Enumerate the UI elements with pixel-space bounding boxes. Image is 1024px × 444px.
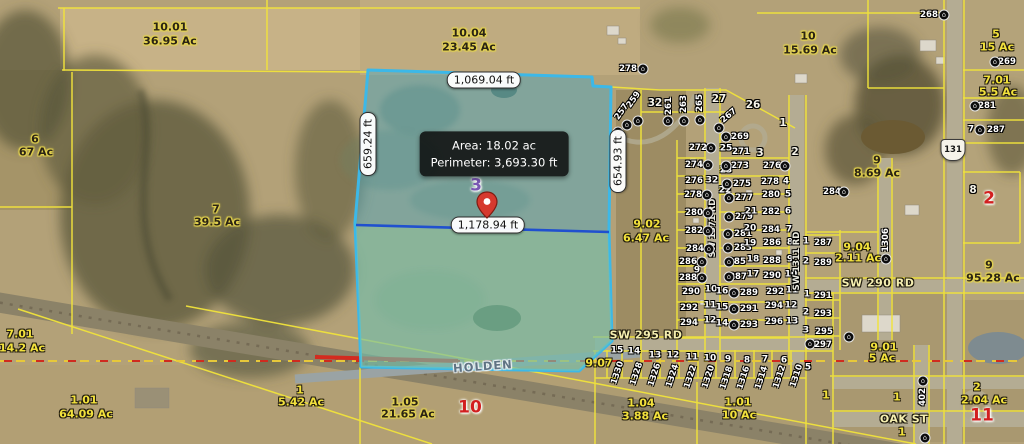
house-icon: ⌂ [704,244,715,255]
measurement-label: 654.93 ft [610,129,627,193]
measurement-label: 1,178.94 ft [451,217,525,234]
tooltip-area-text: Area: 18.02 ac [431,137,558,154]
house-icon: ⌂ [702,190,713,201]
house-icon: ⌂ [844,332,855,343]
house-icon: ⌂ [780,161,791,172]
house-icon: ⌂ [697,273,708,284]
house-icon: ⌂ [724,212,735,223]
map-viewport[interactable]: 10.0136.95 Ac10.0423.45 Ac1015.69 Ac667 … [0,0,1024,444]
house-icon: ⌂ [695,115,706,126]
house-icon: ⌂ [975,125,986,136]
house-icon: ⌂ [722,179,733,190]
house-icon: ⌂ [990,57,1001,68]
measurement-label: 1,069.04 ft [447,72,521,89]
house-icon: ⌂ [721,161,732,172]
house-icon: ⌂ [805,339,816,350]
house-icon: ⌂ [729,288,740,299]
house-icon: ⌂ [729,304,740,315]
house-icon: ⌂ [697,257,708,268]
house-icon: ⌂ [721,132,732,143]
house-icon: ⌂ [729,320,740,331]
house-icon: ⌂ [723,229,734,240]
house-icon: ⌂ [706,143,717,154]
house-icon: ⌂ [881,254,892,265]
house-icon: ⌂ [679,116,690,127]
house-icon: ⌂ [970,101,981,112]
house-icon: ⌂ [723,243,734,254]
house-icon: ⌂ [839,187,850,198]
measurement-label: 659.24 ft [360,112,377,176]
house-icon: ⌂ [703,226,714,237]
house-icon: ⌂ [703,208,714,219]
location-pin-icon[interactable] [476,191,498,219]
house-icon: ⌂ [724,272,735,283]
house-icon: ⌂ [633,116,644,127]
measurement-tooltip: Area: 18.02 ac Perimeter: 3,693.30 ft [420,131,569,176]
tooltip-perimeter-text: Perimeter: 3,693.30 ft [431,154,558,171]
house-icon: ⌂ [920,433,931,444]
house-icon: ⌂ [622,120,633,131]
house-icon: ⌂ [638,64,649,75]
highway-shield-number: 131 [944,145,962,155]
house-icon: ⌂ [724,193,735,204]
house-icon: ⌂ [918,376,929,387]
highway-131-shield: 131 [941,139,966,161]
house-icon: ⌂ [703,160,714,171]
house-icon: ⌂ [724,257,735,268]
house-icon: ⌂ [939,10,950,21]
house-icon: ⌂ [663,116,674,127]
